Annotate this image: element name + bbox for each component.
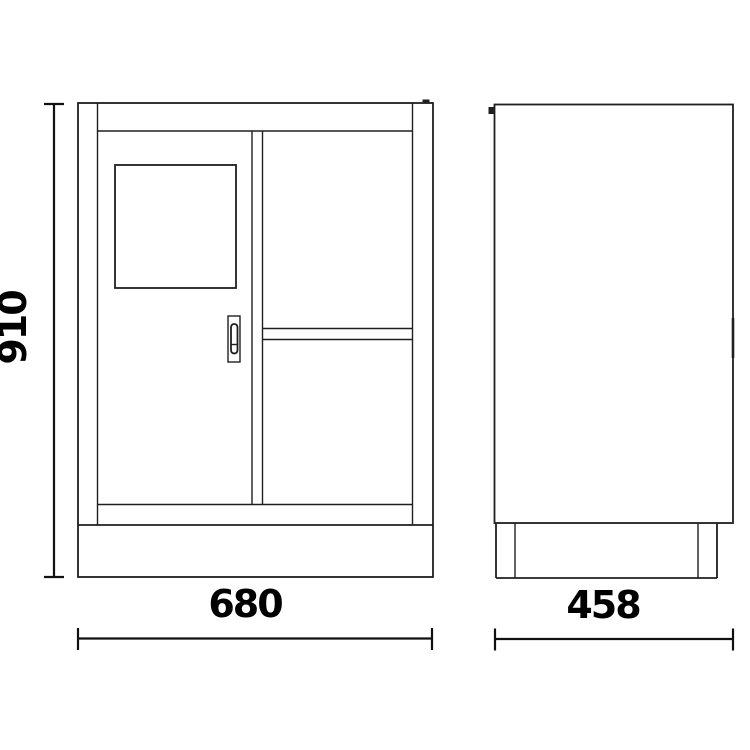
side-body-outline — [495, 105, 734, 524]
depth-dimension-label: 458 — [566, 583, 640, 627]
width-dimension-label: 680 — [208, 582, 282, 626]
door-handle-grip — [231, 324, 238, 354]
front-hinge-tab-icon — [423, 100, 430, 104]
height-dimension: 910 — [0, 104, 64, 577]
width-dimension: 680 — [78, 582, 432, 650]
side-view — [489, 105, 734, 579]
side-hinge-tab-icon — [489, 107, 495, 114]
door-window-panel — [115, 165, 236, 288]
depth-dimension: 458 — [495, 583, 733, 651]
side-plinth-base — [496, 523, 717, 578]
cabinet-dimension-drawing: 910 680 458 — [0, 0, 750, 750]
door-handle — [228, 316, 240, 362]
height-dimension-label: 910 — [0, 291, 35, 365]
technical-drawing-canvas: 910 680 458 — [0, 0, 750, 750]
front-view — [78, 100, 433, 578]
